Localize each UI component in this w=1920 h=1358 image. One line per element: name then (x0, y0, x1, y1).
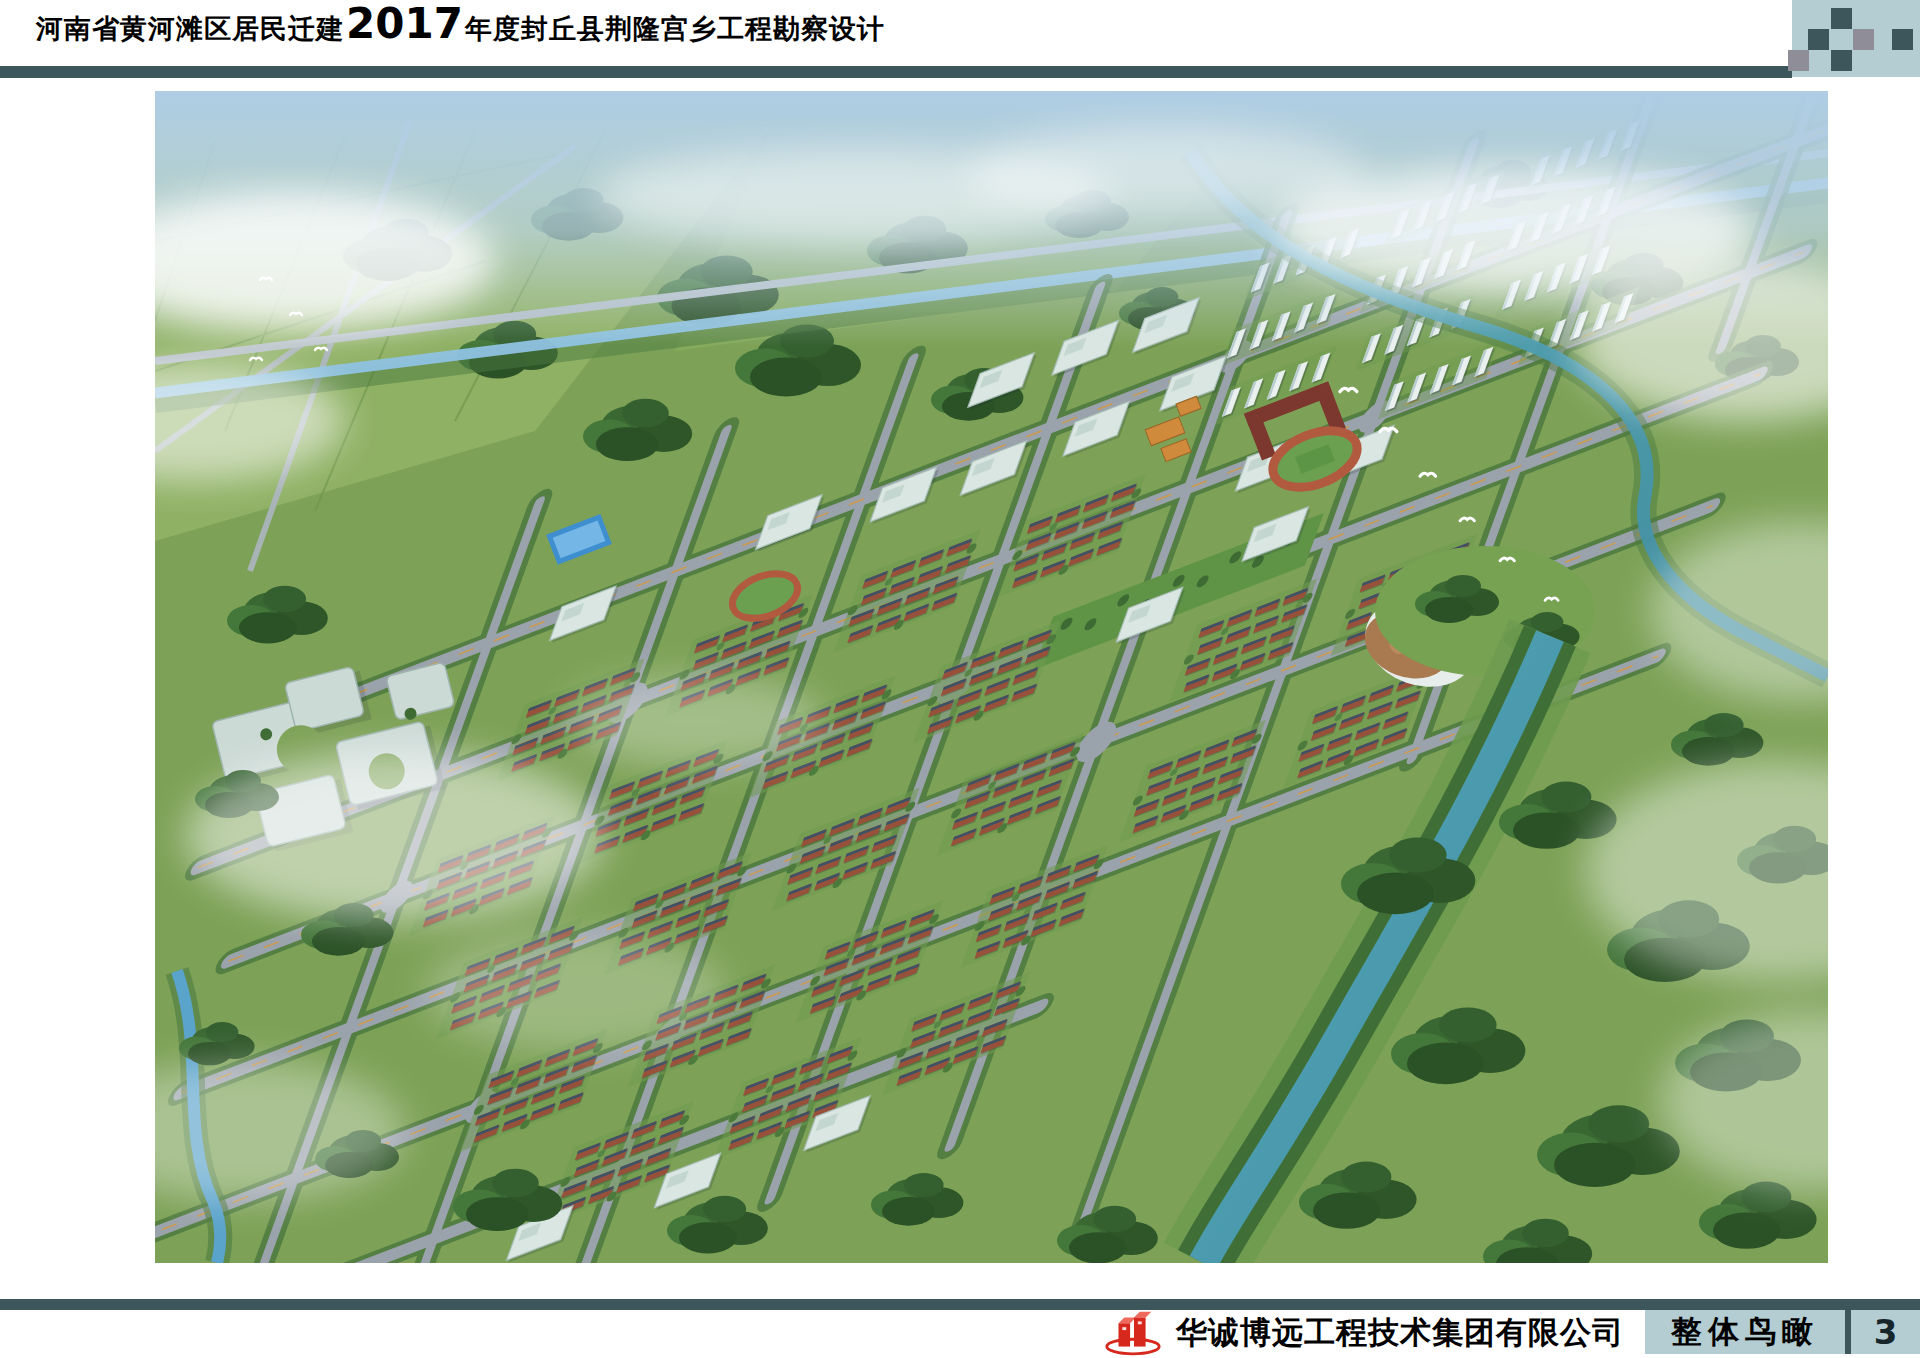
title-year: 2017 (346, 4, 463, 44)
masterplan-render-art (155, 91, 1828, 1263)
title-prefix: 河南省黄河滩区居民迁建 (36, 14, 344, 44)
ornament-square (1831, 8, 1852, 29)
title-suffix: 年度封丘县荆隆宫乡工程勘察设计 (465, 14, 885, 44)
masterplan-render (155, 91, 1828, 1263)
footer-rule (0, 1299, 1920, 1310)
slide: 河南省黄河滩区居民迁建2017年度封丘县荆隆宫乡工程勘察设计 (0, 0, 1920, 1358)
ornament-square (1892, 29, 1913, 50)
header-rule (0, 66, 1792, 78)
ornament-square (1853, 29, 1874, 50)
company-logo-icon (1102, 1310, 1164, 1356)
ornament-square (1808, 29, 1829, 50)
page-title: 河南省黄河滩区居民迁建2017年度封丘县荆隆宫乡工程勘察设计 (36, 4, 885, 44)
page-number: 3 (1851, 1310, 1920, 1354)
ornament-square (1831, 50, 1852, 71)
footer-section-tab: 整体鸟瞰 3 (1645, 1310, 1920, 1354)
ornament-square (1788, 50, 1809, 71)
company-name: 华诚博远工程技术集团有限公司 (1176, 1312, 1624, 1354)
section-label: 整体鸟瞰 (1645, 1310, 1845, 1354)
corner-pixel-ornament (1792, 0, 1920, 77)
company-signature: 华诚博远工程技术集团有限公司 (1102, 1310, 1624, 1356)
